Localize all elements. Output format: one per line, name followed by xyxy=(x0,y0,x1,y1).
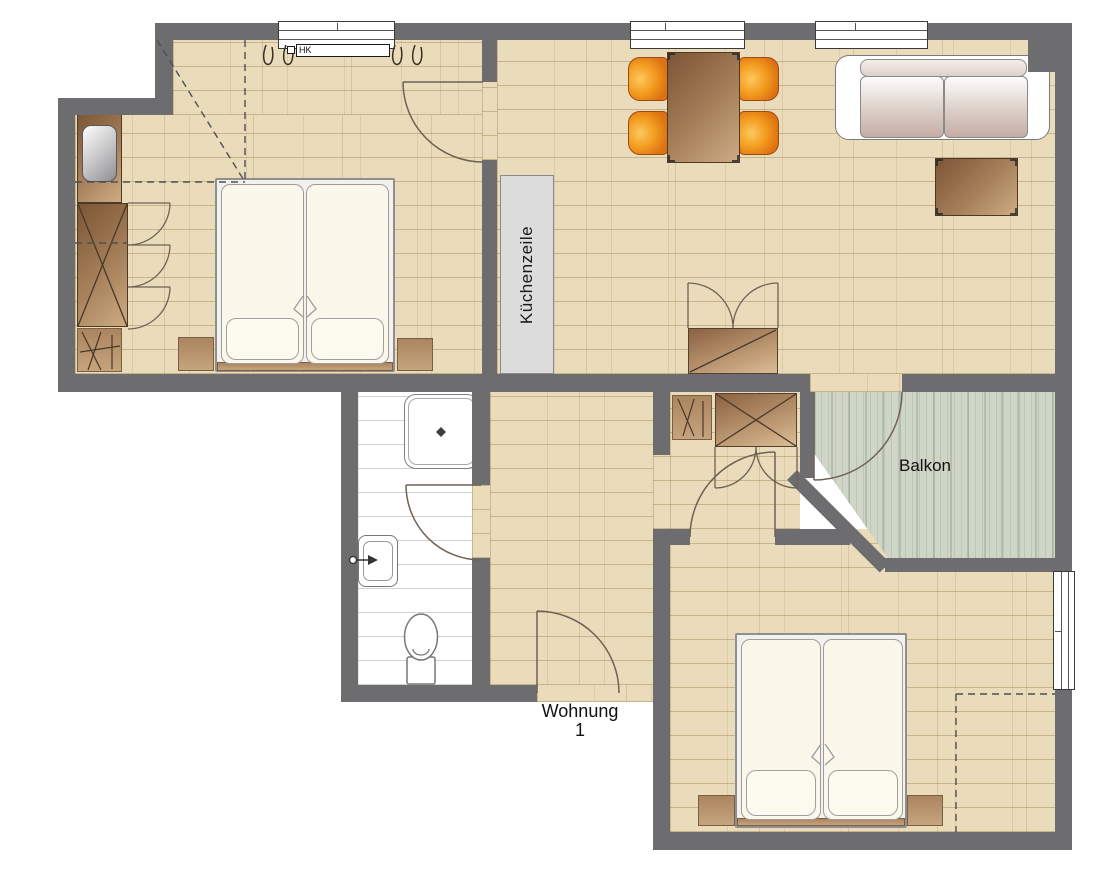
mattress-fold xyxy=(812,744,834,765)
door-arc xyxy=(406,485,481,560)
table-corner-marks xyxy=(669,54,738,161)
radiator-valve-icon xyxy=(287,46,295,54)
table-corner-marks xyxy=(937,160,1016,214)
wardrobe-cross-icon xyxy=(78,204,127,326)
rack-lines-icon xyxy=(678,399,703,437)
balcony-label: Balkon xyxy=(880,456,970,476)
wardrobe-cross-icon xyxy=(716,394,796,446)
floor-plan: HK Küchenzeile xyxy=(0,0,1100,878)
door-arc xyxy=(128,203,170,329)
door-arc xyxy=(537,611,619,693)
apartment-label: Wohnung 1 xyxy=(520,702,640,740)
door-arc xyxy=(403,82,483,162)
shower-drain-icon xyxy=(436,427,446,437)
rack-lines-icon xyxy=(80,332,120,370)
mattress-fold xyxy=(294,296,316,317)
faucet-icon xyxy=(368,555,378,565)
toilet-tank xyxy=(407,657,435,684)
radiator-pipe-icon xyxy=(393,45,422,64)
door-arc xyxy=(688,283,778,328)
apartment-label-number: 1 xyxy=(520,721,640,740)
plan-linework xyxy=(0,0,1100,878)
faucet-icon xyxy=(350,557,357,564)
toilet-bowl xyxy=(405,614,438,660)
radiator-label: HK xyxy=(297,45,312,56)
slope-dashed-line xyxy=(956,694,1055,832)
cabinet-diagonal-icon xyxy=(690,330,776,372)
door-arc xyxy=(690,452,775,537)
apartment-label-name: Wohnung xyxy=(520,702,640,721)
slope-dashed-line xyxy=(75,40,245,243)
radiator: HK xyxy=(296,44,390,57)
